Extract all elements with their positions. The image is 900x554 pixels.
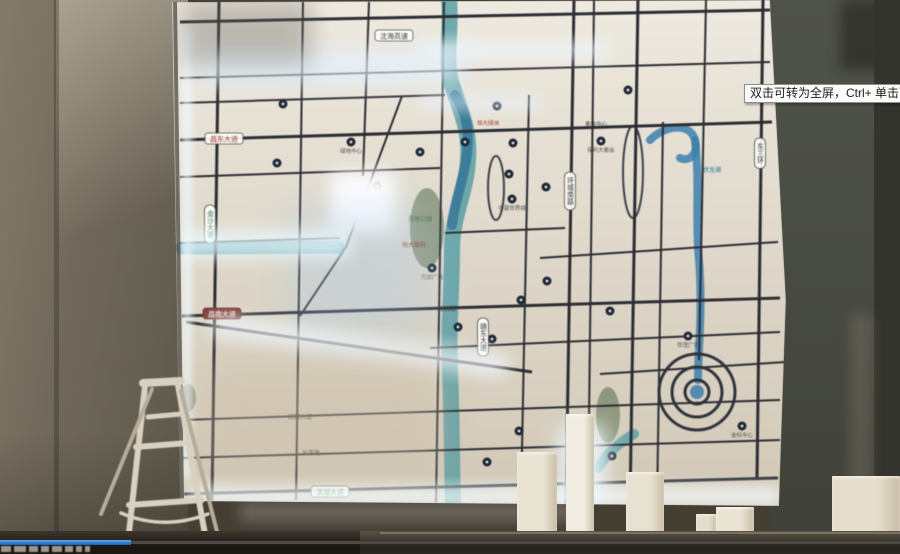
seek-bar-track[interactable]	[0, 541, 900, 544]
map-label: 站前路	[438, 305, 456, 313]
map-label: 东三环	[757, 142, 765, 165]
map-label: 赣东大道	[480, 322, 488, 352]
map-label: 环城南路	[567, 177, 575, 206]
map-label: 伏龙湖	[703, 166, 721, 174]
fullscreen-hint-tooltip: 双击可转为全屏，Ctrl+ 单击可转为	[744, 84, 900, 103]
watermark-text-fragment	[14, 546, 26, 552]
map-label: 恒大绿洲	[477, 119, 500, 127]
watermark-text-fragment	[1, 546, 11, 552]
watermark-text-fragment	[41, 546, 49, 552]
poi-label: 绿地中心	[340, 147, 363, 155]
watermark-text-fragment	[29, 546, 38, 552]
light-glow	[420, 95, 540, 109]
watermark-text-fragment	[52, 546, 62, 552]
light-glow	[186, 488, 782, 504]
watermark-text-fragment	[76, 546, 82, 552]
poi-label: 金科中心	[731, 431, 754, 439]
floor-highlight-line	[380, 532, 900, 534]
poi-label: 保利大都会	[587, 146, 615, 154]
map-label: 奥体中心	[585, 120, 608, 128]
video-frame[interactable]: 绿地中心中骏世界城保利大都会万达广场世茂广场金科中心沈海高速昌东大道昌南大道滨湖…	[0, 0, 900, 554]
illuminated-map: 绿地中心中骏世界城保利大都会万达广场世茂广场金科中心沈海高速昌东大道昌南大道滨湖…	[172, 0, 786, 510]
light-glow	[182, 0, 312, 66]
light-glow	[180, 230, 350, 258]
light-glow	[290, 205, 430, 335]
light-glow	[200, 360, 440, 480]
light-glow	[420, 42, 610, 58]
watermark-text-fragment	[85, 546, 90, 552]
poi-label: 世茂广场	[677, 341, 700, 349]
svg-text:昌东大道: 昌东大道	[210, 134, 238, 143]
watermark-text-fragment	[65, 546, 73, 552]
seek-bar-progress[interactable]	[0, 540, 131, 545]
svg-text:沈海高速: 沈海高速	[380, 31, 408, 40]
poi-label: 中骏世界城	[498, 204, 526, 212]
